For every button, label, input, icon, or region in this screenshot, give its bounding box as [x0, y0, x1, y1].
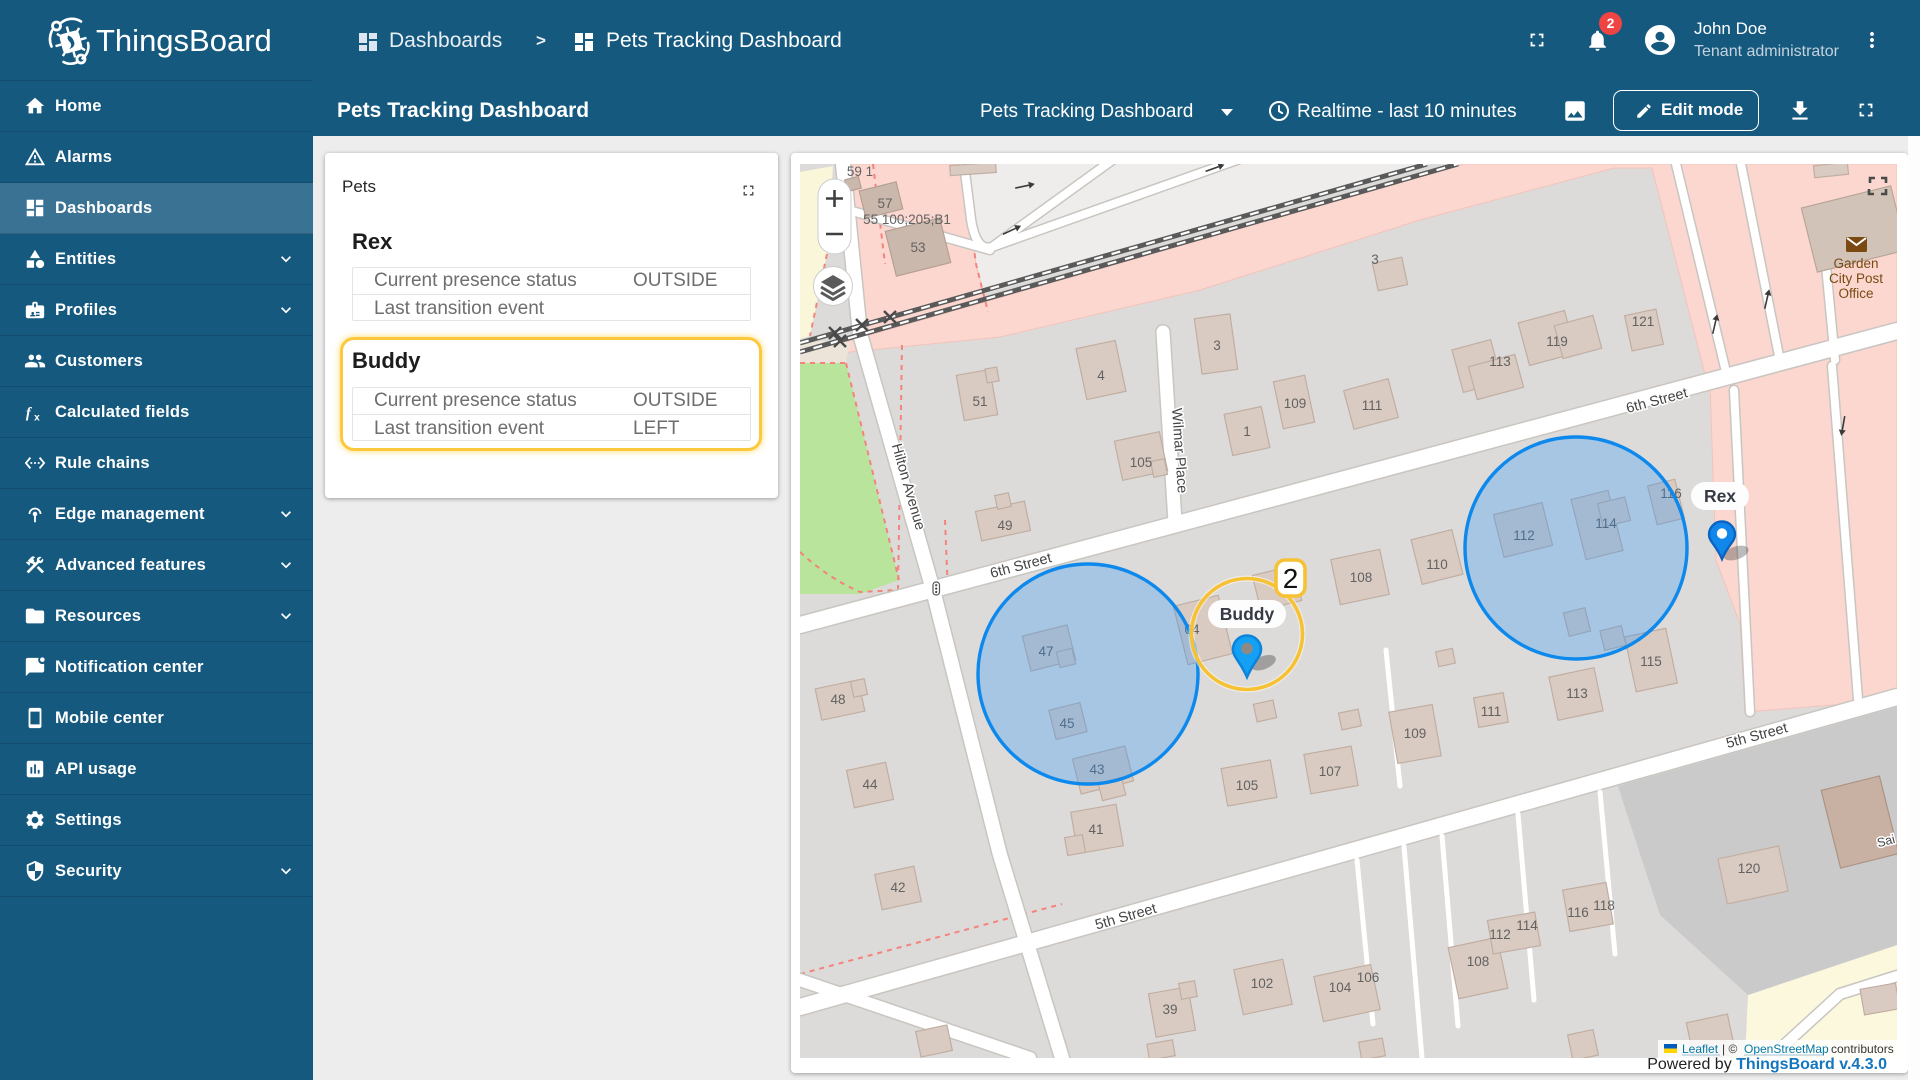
svg-text:107: 107: [1319, 764, 1342, 779]
svg-text:102: 102: [1251, 976, 1274, 991]
svg-text:118: 118: [1593, 898, 1615, 913]
svg-text:121: 121: [1632, 314, 1655, 329]
svg-text:Buddy: Buddy: [1220, 604, 1275, 624]
svg-text:114: 114: [1516, 918, 1538, 933]
svg-text:Rex: Rex: [1704, 486, 1736, 506]
svg-text:113: 113: [1566, 686, 1588, 701]
svg-text:41: 41: [1088, 822, 1103, 837]
svg-text:105: 105: [1130, 455, 1153, 470]
svg-text:3: 3: [1371, 252, 1379, 267]
svg-text:39: 39: [1162, 1002, 1177, 1017]
svg-text:51: 51: [972, 394, 987, 409]
svg-text:x: x: [34, 412, 40, 423]
svg-text:4: 4: [1097, 368, 1105, 383]
svg-text:110: 110: [1426, 557, 1448, 572]
svg-text:112: 112: [1489, 927, 1511, 942]
svg-text:113: 113: [1489, 354, 1511, 369]
svg-text:111: 111: [1362, 398, 1383, 413]
svg-text:49: 49: [997, 518, 1012, 533]
svg-text:119: 119: [1546, 334, 1568, 349]
svg-text:f: f: [26, 406, 33, 422]
svg-text:| ©: | ©: [1722, 1042, 1737, 1056]
svg-text:106: 106: [1357, 970, 1380, 985]
svg-text:Garden: Garden: [1833, 256, 1878, 271]
svg-text:Office: Office: [1838, 286, 1873, 301]
svg-text:3: 3: [1213, 338, 1221, 353]
svg-text:108: 108: [1467, 954, 1490, 969]
svg-text:105: 105: [1236, 778, 1259, 793]
svg-text:44: 44: [862, 777, 878, 792]
svg-text:57: 57: [877, 196, 892, 211]
svg-text:42: 42: [890, 880, 905, 895]
svg-text:City Post: City Post: [1829, 271, 1883, 286]
svg-text:2: 2: [1283, 563, 1299, 594]
svg-text:Leaflet: Leaflet: [1682, 1042, 1719, 1056]
svg-text:120: 120: [1738, 861, 1761, 876]
svg-text:104: 104: [1329, 980, 1352, 995]
svg-text:115: 115: [1640, 654, 1662, 669]
svg-text:109: 109: [1404, 726, 1427, 741]
svg-text:1: 1: [1243, 424, 1251, 439]
svg-text:116: 116: [1567, 905, 1589, 920]
svg-text:108: 108: [1350, 570, 1373, 585]
svg-text:48: 48: [830, 692, 845, 707]
svg-text:contributors: contributors: [1831, 1042, 1894, 1056]
svg-text:111: 111: [1481, 704, 1502, 719]
svg-text:53: 53: [910, 240, 925, 255]
svg-text:55 100;205;B1: 55 100;205;B1: [863, 212, 951, 227]
svg-text:59 1: 59 1: [847, 164, 873, 179]
svg-text:109: 109: [1284, 396, 1307, 411]
svg-text:OpenStreetMap: OpenStreetMap: [1744, 1042, 1829, 1056]
